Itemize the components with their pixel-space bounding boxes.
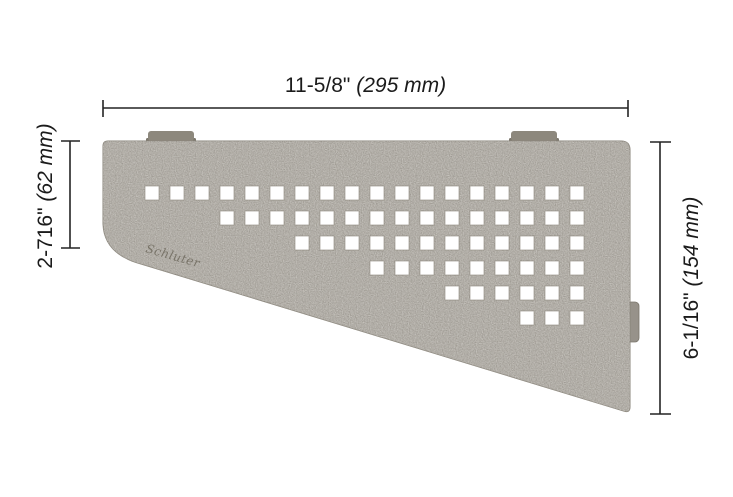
perforation-hole xyxy=(470,261,484,275)
perforation-hole xyxy=(445,236,459,250)
right-height-inches: 6-1/16" xyxy=(680,292,703,359)
perforation-hole xyxy=(445,286,459,300)
perforation-hole xyxy=(445,186,459,200)
right-height-mm: (154 mm) xyxy=(680,197,703,287)
perforation-hole xyxy=(245,211,259,225)
perforation-hole xyxy=(470,211,484,225)
perforation-hole xyxy=(545,261,559,275)
perforation-hole xyxy=(320,236,334,250)
perforation-hole xyxy=(545,311,559,325)
width-mm: (295 mm) xyxy=(356,74,446,97)
perforation-hole xyxy=(370,211,384,225)
perforation-hole xyxy=(545,236,559,250)
perforation-hole xyxy=(495,186,509,200)
width-inches: 11-5/8" xyxy=(285,74,350,97)
perforation-hole xyxy=(520,236,534,250)
perforation-hole xyxy=(495,286,509,300)
perforation-hole xyxy=(570,236,584,250)
perforation-hole xyxy=(395,261,409,275)
perforation-hole xyxy=(345,211,359,225)
perforation-hole xyxy=(495,211,509,225)
perforation-hole xyxy=(570,286,584,300)
perforation-hole xyxy=(420,211,434,225)
perforation-hole xyxy=(520,211,534,225)
perforation-hole xyxy=(395,186,409,200)
perforation-hole xyxy=(545,211,559,225)
perforation-hole xyxy=(470,236,484,250)
perforation-hole xyxy=(495,236,509,250)
dimension-label-left-height: 2-716" (62 mm) xyxy=(33,76,59,316)
dimension-label-right-height: 6-1/16" (154 mm) xyxy=(679,158,705,398)
perforation-hole xyxy=(170,186,184,200)
perforation-hole xyxy=(420,236,434,250)
diagram-canvas: Schluter 11-5/8" (295 mm) 2-716" (62 mm)… xyxy=(0,0,733,497)
perforation-hole xyxy=(470,286,484,300)
dimension-line-right xyxy=(650,142,671,414)
dimension-line-left xyxy=(61,141,80,248)
perforation-hole xyxy=(520,261,534,275)
perforation-hole xyxy=(345,186,359,200)
perforation-hole xyxy=(370,186,384,200)
perforation-hole xyxy=(420,261,434,275)
perforation-hole xyxy=(295,211,309,225)
perforation-hole xyxy=(570,311,584,325)
perforation-hole xyxy=(420,186,434,200)
perforation-hole xyxy=(295,186,309,200)
perforation-hole xyxy=(445,261,459,275)
perforation-hole xyxy=(220,186,234,200)
perforation-hole xyxy=(270,186,284,200)
perforation-hole xyxy=(295,236,309,250)
left-height-inches: 2-716" xyxy=(34,207,57,268)
perforation-hole xyxy=(320,211,334,225)
perforation-hole xyxy=(345,236,359,250)
perforation-hole xyxy=(545,286,559,300)
dimension-label-width: 11-5/8" (295 mm) xyxy=(180,73,551,99)
perforation-hole xyxy=(570,211,584,225)
dimension-line-top xyxy=(103,100,628,117)
perforation-hole xyxy=(195,186,209,200)
left-height-mm: (62 mm) xyxy=(34,123,57,201)
perforation-hole xyxy=(495,261,509,275)
perforation-hole xyxy=(320,186,334,200)
perforation-hole xyxy=(145,186,159,200)
perforation-hole xyxy=(395,236,409,250)
perforation-hole xyxy=(470,186,484,200)
perforation-hole xyxy=(520,311,534,325)
perforation-hole xyxy=(245,186,259,200)
perforation-hole xyxy=(520,286,534,300)
perforation-hole xyxy=(270,211,284,225)
perforation-hole xyxy=(570,186,584,200)
perforation-hole xyxy=(545,186,559,200)
perforation-hole xyxy=(370,261,384,275)
perforation-hole xyxy=(445,211,459,225)
perforation-hole xyxy=(370,236,384,250)
perforation-hole xyxy=(220,211,234,225)
perforation-hole xyxy=(570,261,584,275)
perforation-hole xyxy=(395,211,409,225)
perforation-hole xyxy=(520,186,534,200)
